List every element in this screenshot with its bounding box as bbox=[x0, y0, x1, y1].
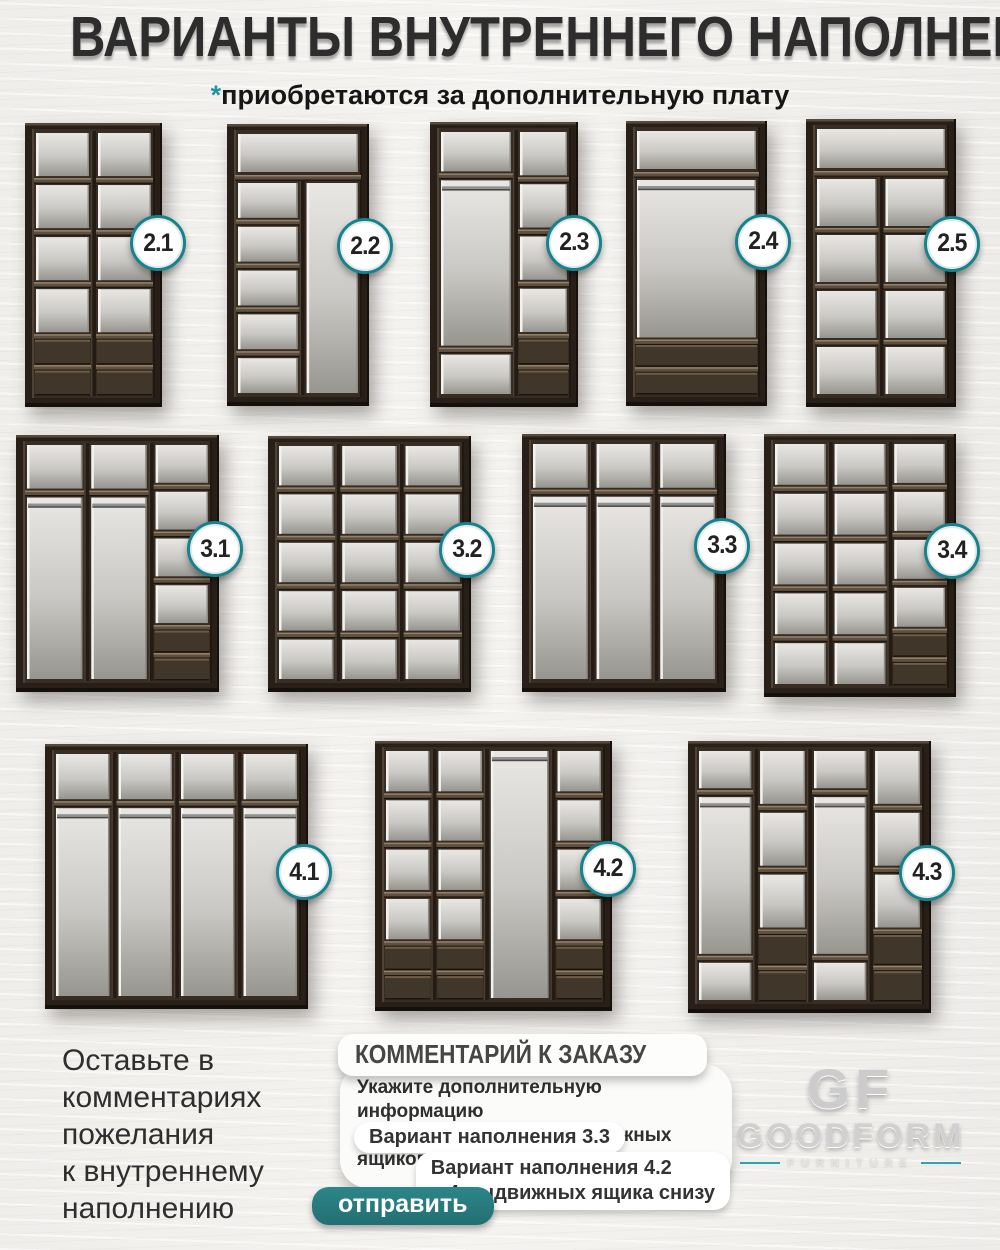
wardrobe-variant-2-3: 2.3 bbox=[430, 122, 578, 407]
variant-badge-2-4: 2.4 bbox=[735, 214, 791, 270]
variant-badge-2-1: 2.1 bbox=[130, 215, 186, 271]
left-note-line: наполнению bbox=[62, 1190, 322, 1227]
wardrobe-variant-4-2: 4.2 bbox=[375, 741, 612, 1011]
left-note-line: комментариях bbox=[62, 1079, 322, 1116]
variant-badge-label: 3.2 bbox=[452, 535, 481, 564]
variant-badge-label: 3.3 bbox=[707, 531, 736, 560]
wardrobe-variant-3-1: 3.1 bbox=[16, 435, 219, 692]
wardrobe-variant-2-5: 2.5 bbox=[806, 119, 956, 407]
wardrobe-illustration-3-1 bbox=[16, 435, 219, 692]
wardrobe-variant-3-2: 3.2 bbox=[268, 436, 471, 692]
variant-badge-label: 3.1 bbox=[200, 535, 229, 564]
poster-page: ВАРИАНТЫ ВНУТРЕННЕГО НАПОЛНЕНИЯ* *приобр… bbox=[0, 0, 1000, 1250]
variant-badge-2-2: 2.2 bbox=[337, 218, 393, 274]
variant-badge-3-3: 3.3 bbox=[694, 518, 750, 574]
subtitle-text: приобретаются за дополнительную плату bbox=[221, 80, 789, 110]
variant-badge-2-5: 2.5 bbox=[924, 216, 980, 272]
wardrobe-variant-3-4: 3.4 bbox=[764, 434, 956, 697]
wardrobe-illustration-4-2 bbox=[375, 741, 612, 1011]
logo-name: GOODFORM bbox=[733, 1118, 968, 1154]
variant-badge-4-3: 4.3 bbox=[899, 845, 955, 901]
variant-badge-label: 2.5 bbox=[937, 229, 966, 258]
wardrobe-illustration-3-3 bbox=[522, 434, 726, 692]
variant-badge-3-1: 3.1 bbox=[187, 521, 243, 577]
wardrobe-illustration-4-1 bbox=[45, 744, 308, 1009]
logo-tagline: FURNITURE bbox=[733, 1157, 968, 1169]
logo-monogram: GF bbox=[733, 1060, 968, 1118]
page-title-text: ВАРИАНТЫ ВНУТРЕННЕГО НАПОЛНЕНИЯ bbox=[70, 5, 1000, 69]
page-subtitle: *приобретаются за дополнительную плату bbox=[0, 80, 1000, 111]
wardrobe-variant-2-1: 2.1 bbox=[25, 123, 162, 407]
variant-badge-label: 2.2 bbox=[350, 232, 379, 261]
variant-badge-label: 3.4 bbox=[937, 536, 966, 565]
wardrobe-variant-2-4: 2.4 bbox=[626, 121, 767, 406]
comment-bubble-2-line: Вариант наполнения 4.2 bbox=[431, 1156, 715, 1181]
variant-badge-4-1: 4.1 bbox=[276, 844, 332, 900]
variant-badge-2-3: 2.3 bbox=[546, 215, 602, 271]
left-note-line: Оставьте в bbox=[62, 1042, 322, 1079]
comment-bubble-1: Вариант наполнения 3.3 bbox=[354, 1122, 625, 1153]
comment-header: КОММЕНТАРИЙ К ЗАКАЗУ bbox=[338, 1034, 707, 1076]
wardrobe-variant-3-3: 3.3 bbox=[522, 434, 726, 692]
variant-badge-label: 4.2 bbox=[593, 854, 622, 883]
variant-badge-3-4: 3.4 bbox=[924, 523, 980, 579]
wardrobe-illustration-4-3 bbox=[688, 741, 931, 1013]
left-note-line: к внутреннему bbox=[62, 1153, 322, 1190]
variant-badge-4-2: 4.2 bbox=[580, 841, 636, 897]
variant-badge-label: 2.3 bbox=[559, 228, 588, 257]
wardrobe-variant-2-2: 2.2 bbox=[227, 124, 369, 406]
page-title: ВАРИАНТЫ ВНУТРЕННЕГО НАПОЛНЕНИЯ* bbox=[70, 6, 930, 68]
wardrobe-variant-4-3: 4.3 bbox=[688, 741, 931, 1013]
brand-logo: GF GOODFORM FURNITURE bbox=[733, 1060, 968, 1169]
tagline-line-left bbox=[740, 1162, 780, 1164]
variant-badge-label: 4.3 bbox=[912, 858, 941, 887]
comment-panel: Укажите дополнительную информацию к зака… bbox=[340, 1064, 732, 1188]
comment-header-text: КОММЕНТАРИЙ К ЗАКАЗУ bbox=[355, 1039, 646, 1070]
variant-badge-label: 2.4 bbox=[748, 227, 777, 256]
variant-badge-label: 2.1 bbox=[143, 229, 172, 258]
logo-tagline-text: FURNITURE bbox=[787, 1157, 914, 1169]
variant-badge-label: 4.1 bbox=[289, 858, 318, 887]
variant-badge-3-2: 3.2 bbox=[439, 522, 495, 578]
tagline-line-right bbox=[921, 1162, 961, 1164]
send-button[interactable]: отправить bbox=[312, 1187, 494, 1225]
left-note-line: пожелания bbox=[62, 1116, 322, 1153]
comment-info-line: Укажите дополнительную информацию bbox=[357, 1076, 717, 1124]
left-note: Оставьте в комментариях пожелания к внут… bbox=[62, 1042, 322, 1227]
subtitle-asterisk: * bbox=[211, 80, 222, 110]
wardrobe-variant-4-1: 4.1 bbox=[45, 744, 308, 1009]
wardrobe-illustration-3-2 bbox=[268, 436, 471, 692]
